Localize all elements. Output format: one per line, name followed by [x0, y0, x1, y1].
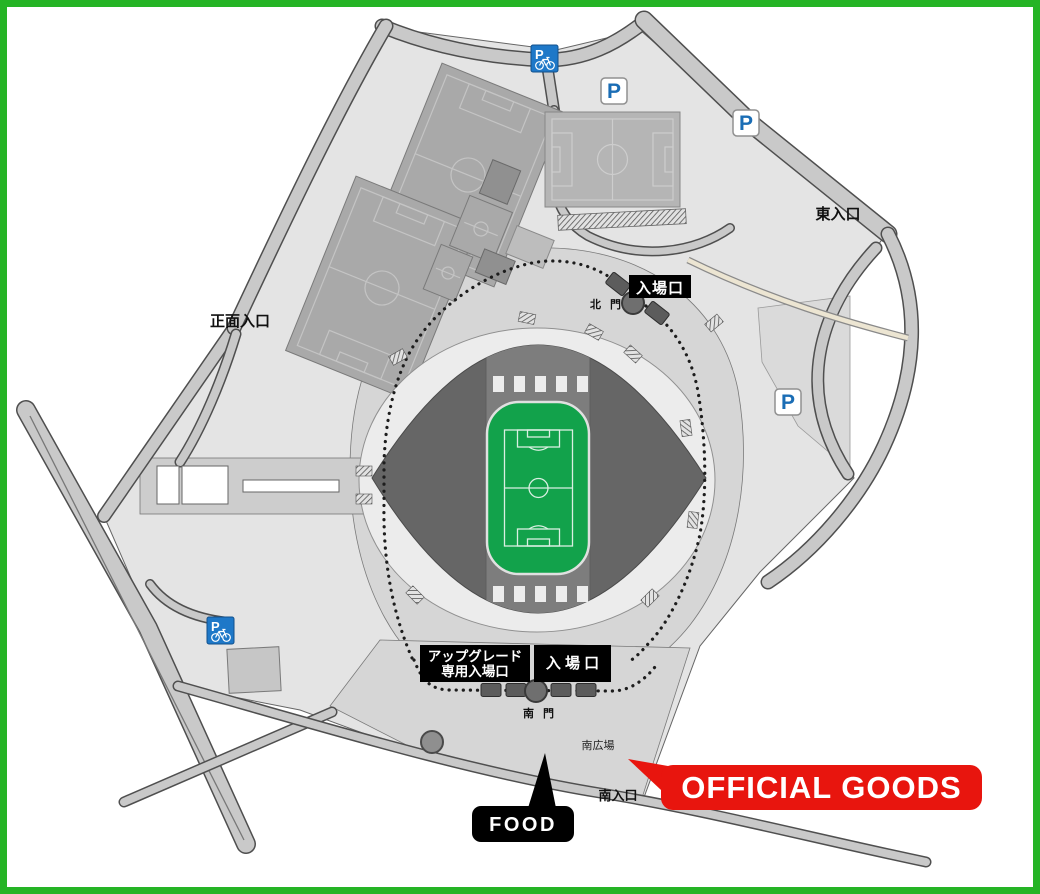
south-gate-label: 南 門 — [523, 706, 557, 720]
north-gate-label: 北 門 — [590, 297, 624, 311]
upgrade-entrance-sign: アップグレード 専用入場口 — [420, 645, 530, 682]
official-goods-text: OFFICIAL GOODS — [681, 770, 961, 805]
south-plaza-label: 南広場 — [582, 739, 615, 752]
parking-icon-north: P — [601, 78, 627, 104]
north-admission-text: 入場口 — [636, 280, 684, 297]
south-gate-marker — [525, 680, 547, 702]
parking-icon-east: P — [775, 389, 801, 415]
south-admission-sign: 入 場 口 — [534, 645, 611, 682]
south-admission-text: 入 場 口 — [546, 655, 599, 672]
upgrade-entrance-text-line2: 専用入場口 — [441, 663, 509, 679]
bicycle-parking-icon-southwest: P — [207, 617, 234, 644]
parking-letter: P — [607, 80, 621, 103]
map-canvas: P P P P P 東入口 正面入口 北 門 南 門 南広場 南入口 入場口 — [0, 0, 1040, 894]
food-text: FOOD — [489, 814, 557, 836]
stadium-map: P P P P P 東入口 正面入口 北 門 南 門 南広場 南入口 入場口 — [0, 0, 1040, 894]
main-entrance-label: 正面入口 — [210, 313, 270, 330]
practice-field-north — [545, 112, 680, 207]
upgrade-entrance-text-line1: アップグレード — [428, 648, 523, 664]
parking-icon-northeast: P — [733, 110, 759, 136]
bicycle-parking-icon-north: P — [531, 45, 558, 72]
south-entrance-label: 南入口 — [598, 788, 637, 803]
north-admission-sign: 入場口 — [629, 275, 691, 298]
east-entrance-label: 東入口 — [815, 205, 860, 223]
official-goods-callout: OFFICIAL GOODS — [628, 759, 982, 810]
parking-letter: P — [739, 112, 753, 135]
plaza-monument — [421, 731, 443, 753]
parking-letter: P — [781, 391, 795, 414]
